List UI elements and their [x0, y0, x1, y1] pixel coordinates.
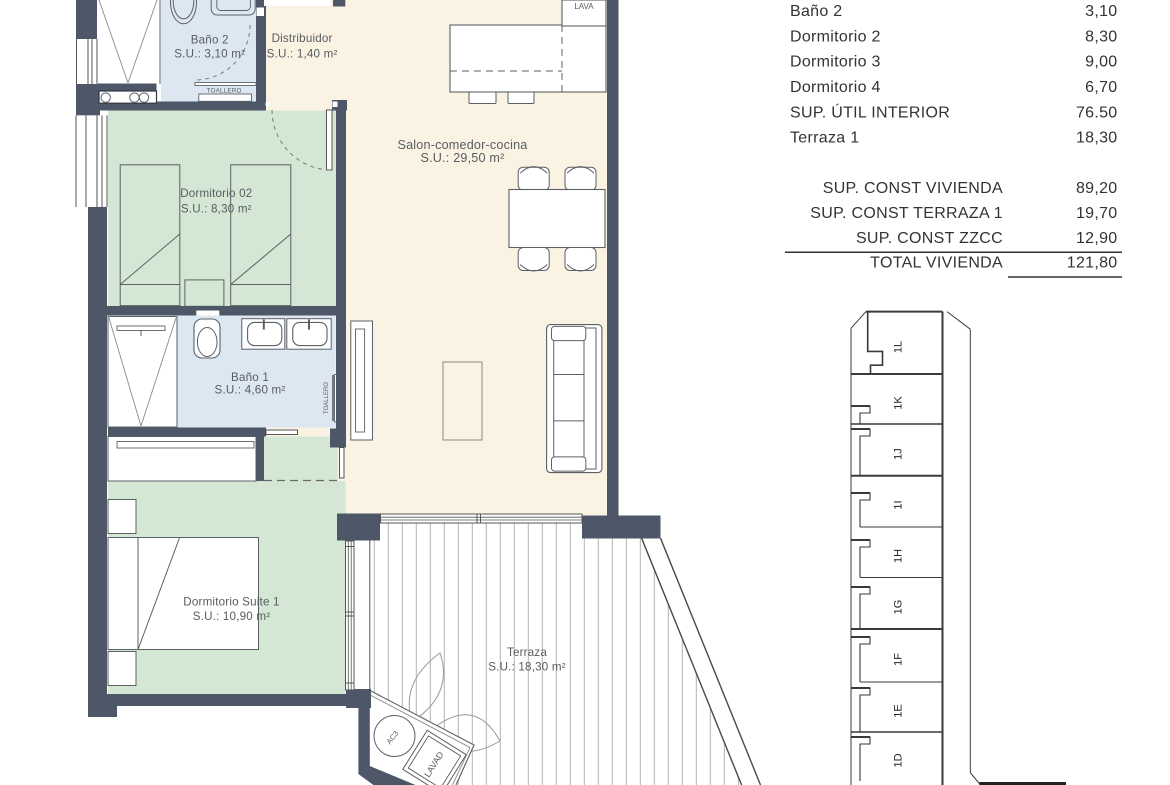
svg-text:Terraza 1: Terraza 1 [790, 130, 859, 147]
svg-text:89,20: 89,20 [1076, 180, 1118, 197]
svg-text:TOALLERO: TOALLERO [207, 87, 242, 94]
svg-text:S.U.: 8,30 m²: S.U.: 8,30 m² [181, 203, 252, 216]
svg-text:1J: 1J [893, 448, 905, 460]
svg-text:S.U.: 29,50 m²: S.U.: 29,50 m² [421, 151, 505, 165]
svg-text:1K: 1K [893, 396, 905, 410]
svg-text:1F: 1F [893, 653, 905, 666]
svg-text:Dormitorio 2: Dormitorio 2 [790, 28, 881, 45]
svg-text:8,30: 8,30 [1085, 28, 1117, 45]
svg-text:6,70: 6,70 [1085, 79, 1117, 96]
svg-text:121,80: 121,80 [1067, 255, 1118, 272]
svg-text:9,00: 9,00 [1085, 54, 1117, 71]
svg-text:Dormitorio 02: Dormitorio 02 [180, 187, 252, 200]
svg-text:1E: 1E [893, 704, 905, 717]
svg-text:1H: 1H [893, 549, 905, 563]
svg-text:Baño 1: Baño 1 [231, 371, 269, 384]
svg-text:S.U.: 10,90 m²: S.U.: 10,90 m² [193, 610, 271, 623]
svg-text:76.50: 76.50 [1076, 104, 1118, 121]
svg-text:3,10: 3,10 [1085, 3, 1117, 20]
svg-text:S.U.: 18,30 m²: S.U.: 18,30 m² [488, 661, 566, 674]
svg-text:Dormitorio 4: Dormitorio 4 [790, 79, 881, 96]
svg-text:18,30: 18,30 [1076, 130, 1118, 147]
svg-text:1G: 1G [893, 600, 905, 615]
svg-text:LAVA: LAVA [574, 2, 594, 11]
svg-text:19,70: 19,70 [1076, 205, 1118, 222]
svg-text:1L: 1L [893, 341, 905, 353]
svg-text:Terraza: Terraza [507, 646, 547, 659]
svg-text:1D: 1D [893, 753, 905, 767]
svg-text:Baño 2: Baño 2 [790, 3, 843, 20]
svg-text:Dormitorio 3: Dormitorio 3 [790, 54, 881, 71]
svg-text:Dormitorio Suite 1: Dormitorio Suite 1 [183, 596, 279, 609]
svg-text:Salon-comedor-cocina: Salon-comedor-cocina [398, 138, 528, 152]
svg-text:12,90: 12,90 [1076, 230, 1118, 247]
svg-text:S.U.: 3,10 m²: S.U.: 3,10 m² [174, 48, 245, 61]
svg-text:SUP. CONST ZZCC: SUP. CONST ZZCC [856, 230, 1003, 247]
svg-text:1I: 1I [893, 500, 905, 509]
svg-text:SUP. CONST VIVIENDA: SUP. CONST VIVIENDA [823, 180, 1003, 197]
svg-text:S.U.: 4,60 m²: S.U.: 4,60 m² [215, 384, 286, 397]
svg-text:Baño 2: Baño 2 [191, 34, 229, 47]
svg-text:SUP. CONST TERRAZA 1: SUP. CONST TERRAZA 1 [810, 205, 1003, 222]
svg-text:TOALLERO: TOALLERO [324, 382, 330, 414]
svg-text:SUP. ÚTIL INTERIOR: SUP. ÚTIL INTERIOR [790, 102, 950, 121]
svg-text:TOTAL VIVIENDA: TOTAL VIVIENDA [870, 255, 1003, 272]
svg-text:Distribuidor: Distribuidor [272, 32, 333, 45]
svg-text:S.U.: 1,40 m²: S.U.: 1,40 m² [267, 48, 338, 61]
